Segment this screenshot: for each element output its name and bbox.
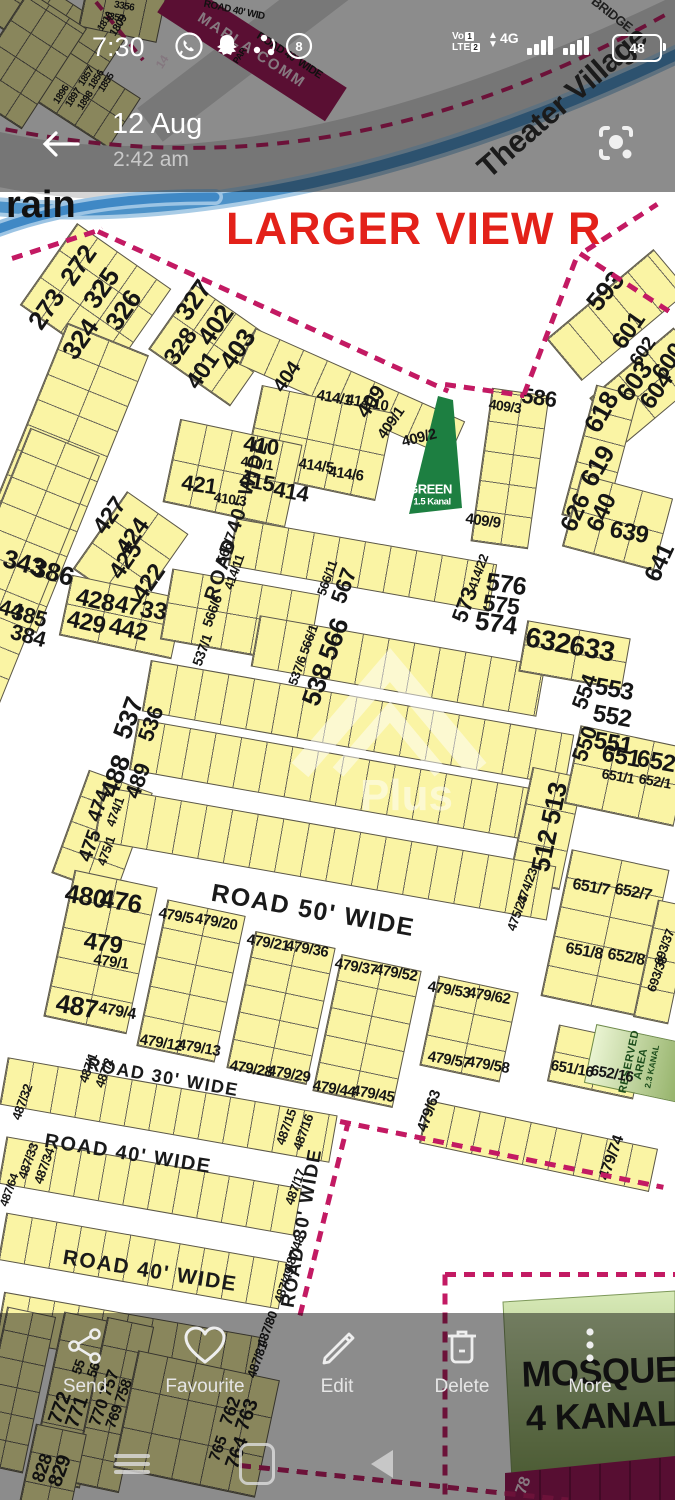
status-bar: 7:30 8 Vo1 LTE2 ▲▼ 4G 48 — [0, 28, 675, 70]
photo-date: 12 Aug — [112, 108, 202, 141]
whatsapp-icon — [174, 31, 204, 61]
network-type: 4G — [500, 30, 519, 46]
back-triangle-icon — [371, 1450, 393, 1478]
photo-header: 12 Aug 2:42 am — [0, 108, 675, 178]
favourite-label: Favourite — [150, 1376, 260, 1398]
nav-home-button[interactable] — [227, 1440, 287, 1488]
phone-screen: Plus LARGER VIEW R rain MARLA COMM RESER… — [0, 0, 675, 1500]
send-label: Send — [30, 1376, 140, 1398]
menu-lines-icon — [114, 1450, 150, 1479]
plot-number: 414/6 — [328, 464, 365, 484]
photo-time: 2:42 am — [113, 148, 189, 172]
clock: 7:30 — [92, 32, 145, 63]
green-area-label: GREEN — [408, 483, 452, 496]
more-label: More — [535, 1376, 645, 1398]
plot-number: 476 — [98, 885, 144, 918]
favourite-button[interactable]: Favourite — [150, 1318, 260, 1413]
send-icon — [63, 1324, 107, 1368]
plot-number: 409/3 — [488, 397, 522, 415]
send-button[interactable]: Send — [30, 1318, 140, 1413]
delete-button[interactable]: Delete — [407, 1318, 517, 1413]
edit-label: Edit — [282, 1376, 392, 1398]
plot-number: 479/1 — [93, 952, 130, 972]
plot-number: 421 — [180, 472, 218, 499]
signal-bars-sim1 — [527, 36, 553, 55]
map-image[interactable]: Plus LARGER VIEW R rain MARLA COMM RESER… — [0, 0, 675, 1500]
nav-back-button[interactable] — [352, 1440, 412, 1488]
action-toolbar: Send Favourite Edit Delete — [0, 1318, 675, 1418]
lens-icon — [594, 120, 642, 168]
lens-button[interactable] — [594, 120, 642, 168]
signal-bars-sim2 — [563, 36, 589, 55]
plot-number: 414 — [272, 478, 311, 506]
more-button[interactable]: More — [535, 1318, 645, 1413]
nav-menu-button[interactable] — [102, 1440, 162, 1488]
plot-number: 639 — [608, 518, 650, 548]
plot-number: 409/9 — [465, 511, 502, 531]
navigation-bar — [0, 1432, 675, 1492]
map-title: LARGER VIEW R — [226, 203, 602, 255]
plot-number: 487 — [54, 990, 100, 1023]
green-area-label: 1.5 Kanal — [413, 497, 450, 507]
back-button[interactable] — [38, 126, 82, 162]
volte-indicator: Vo1 LTE2 — [452, 32, 480, 53]
home-square-icon — [239, 1443, 275, 1485]
svg-text:8: 8 — [295, 39, 302, 54]
eightball-icon: 8 — [284, 31, 314, 61]
plot-number: 574 — [473, 607, 518, 639]
pencil-icon — [315, 1324, 359, 1368]
edit-button[interactable]: Edit — [282, 1318, 392, 1413]
data-arrows-icon: ▲▼ — [488, 31, 498, 49]
share-network-icon — [250, 31, 280, 61]
boundary-dashed-line — [445, 1272, 675, 1277]
heart-icon — [182, 1324, 228, 1368]
battery-indicator: 48 — [612, 34, 662, 62]
back-arrow-icon — [38, 126, 82, 162]
snapchat-icon — [212, 31, 242, 61]
delete-label: Delete — [407, 1376, 517, 1398]
trash-icon — [440, 1324, 484, 1368]
more-dots-icon — [568, 1324, 612, 1368]
